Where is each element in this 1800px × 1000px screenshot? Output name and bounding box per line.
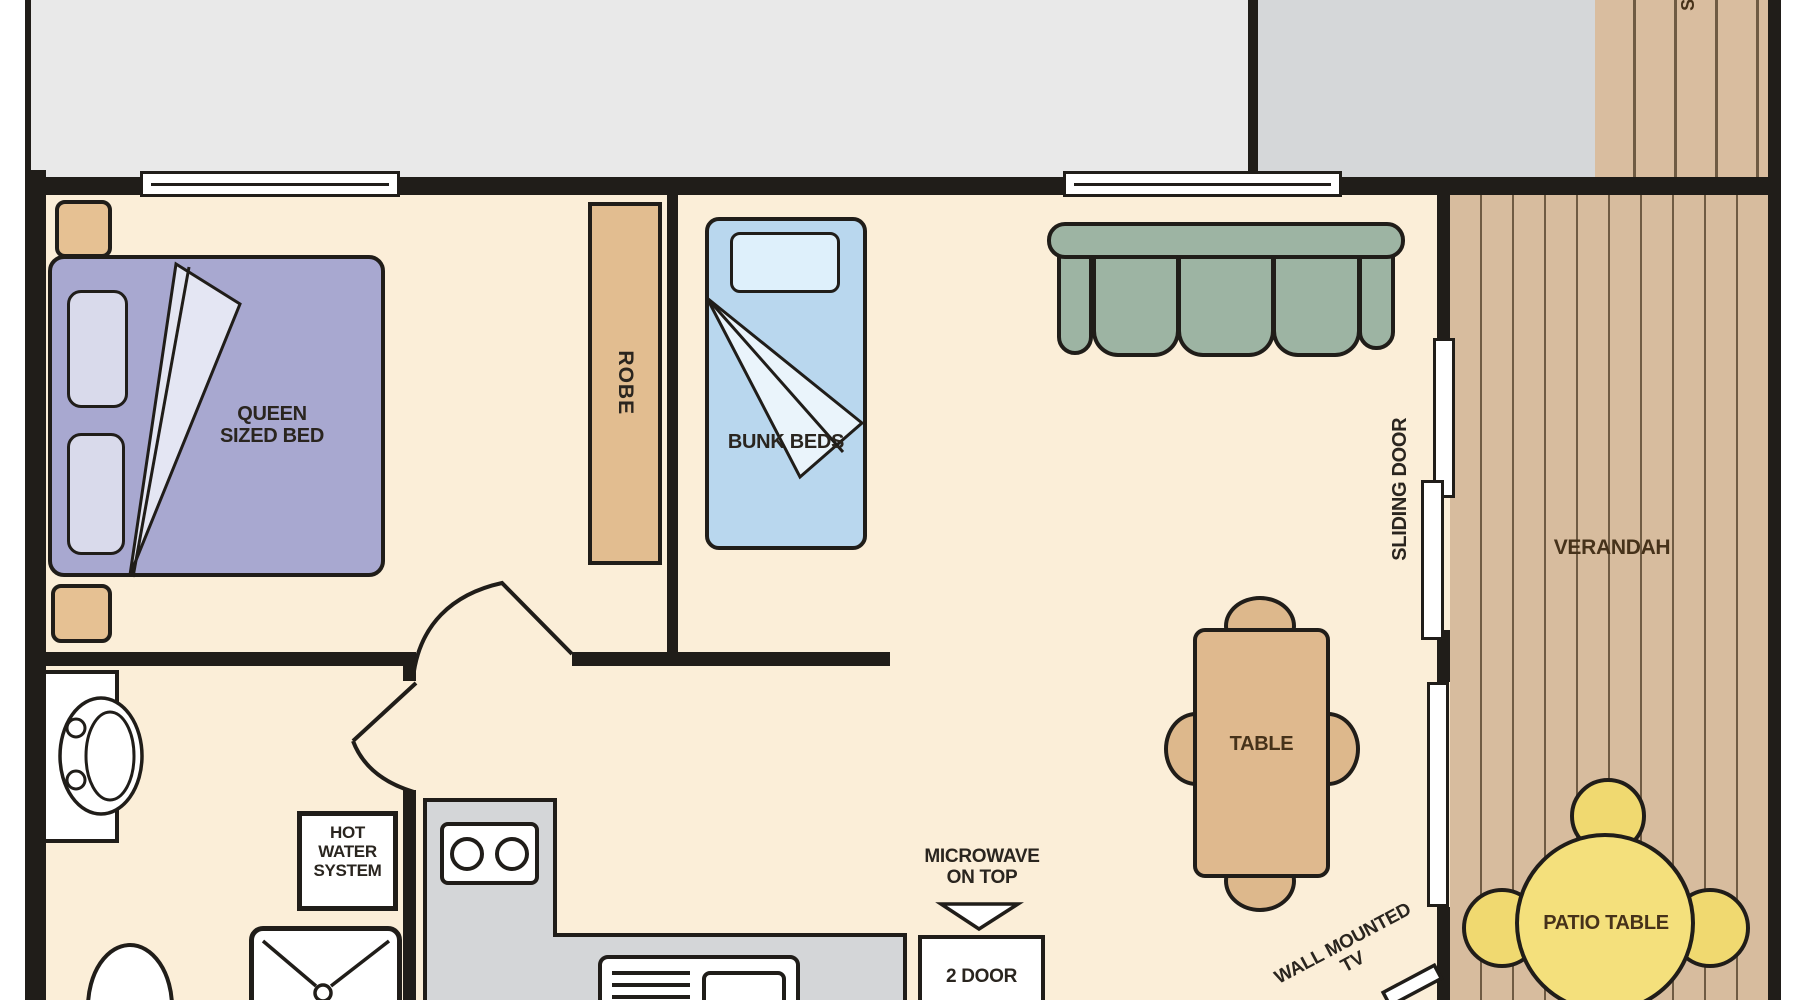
dining-table-label: TABLE bbox=[1193, 733, 1330, 755]
queen-bed-label-line1: QUEEN bbox=[172, 403, 372, 425]
queen-bed-label: QUEEN SIZED BED bbox=[172, 403, 372, 448]
sofa-cushion-2 bbox=[1177, 250, 1275, 357]
side-window-panel bbox=[1427, 682, 1449, 907]
sofa-cushion-3 bbox=[1272, 250, 1361, 357]
sofa-cushion-left-arm bbox=[1057, 250, 1093, 355]
outside-area-dark bbox=[1258, 0, 1595, 177]
sink-drainer-line-1 bbox=[612, 971, 690, 975]
steps-label: S bbox=[1678, 0, 1706, 21]
wall-verandah-top bbox=[1437, 195, 1450, 338]
wall-left bbox=[25, 170, 46, 1000]
window-bedroom1 bbox=[140, 171, 400, 197]
hot-water-label-line2: WATER bbox=[297, 842, 398, 861]
queen-pillow-top bbox=[67, 290, 128, 408]
wall-gray-divider bbox=[1248, 0, 1258, 177]
wall-left-thin bbox=[25, 0, 31, 177]
wall-hall-bottom bbox=[572, 652, 890, 666]
sofa-backrest bbox=[1047, 222, 1405, 259]
microwave-label-line1: MICROWAVE bbox=[902, 846, 1062, 867]
stove-burner-left bbox=[450, 837, 484, 871]
hot-water-label: HOT WATER SYSTEM bbox=[297, 823, 398, 880]
microwave-label-line2: ON TOP bbox=[902, 867, 1062, 888]
bunk-beds-label: BUNK BEDS bbox=[706, 431, 866, 453]
sofa-cushion-right-arm bbox=[1358, 250, 1395, 350]
outside-area-light bbox=[31, 0, 1248, 177]
wall-right-outer bbox=[1768, 0, 1781, 1000]
wall-bedroom-divider bbox=[667, 195, 678, 658]
queen-bed-label-line2: SIZED BED bbox=[172, 425, 372, 447]
vanity bbox=[41, 670, 119, 843]
microwave-label: MICROWAVE ON TOP bbox=[902, 846, 1062, 889]
bedside-table-top bbox=[55, 200, 112, 258]
queen-pillow-bottom bbox=[67, 433, 125, 555]
wall-bath-jamb bbox=[403, 652, 416, 681]
bedside-table-bottom bbox=[51, 584, 112, 643]
sliding-door-panel-2 bbox=[1421, 480, 1444, 640]
fridge-label: 2 DOOR bbox=[918, 966, 1045, 987]
sliding-door-panel-1 bbox=[1433, 338, 1455, 498]
sliding-door-label: SLIDING DOOR bbox=[1389, 409, 1411, 569]
sink-bowl bbox=[702, 971, 786, 1000]
floor-plan: S QUEEN SIZED BED ROBE BUNK BEDS bbox=[0, 0, 1800, 1000]
stove-burner-right bbox=[495, 837, 529, 871]
sink-drainer-line-3 bbox=[612, 995, 690, 999]
wall-bath bbox=[403, 790, 416, 1000]
wall-bedroom1-bottom bbox=[46, 652, 410, 666]
shower bbox=[249, 926, 402, 1000]
hot-water-label-line1: HOT bbox=[297, 823, 398, 842]
hot-water-label-line3: SYSTEM bbox=[297, 861, 398, 880]
wall-verandah-bottom bbox=[1437, 907, 1450, 1000]
window-living bbox=[1063, 171, 1342, 197]
patio-table-label: PATIO TABLE bbox=[1516, 912, 1696, 934]
steps-deck bbox=[1595, 0, 1768, 177]
robe-label: ROBE bbox=[613, 313, 637, 453]
sofa-cushion-1 bbox=[1092, 250, 1180, 357]
bunk-pillow bbox=[730, 232, 840, 293]
sink-drainer-line-2 bbox=[612, 983, 690, 987]
verandah-label: VERANDAH bbox=[1532, 536, 1692, 560]
